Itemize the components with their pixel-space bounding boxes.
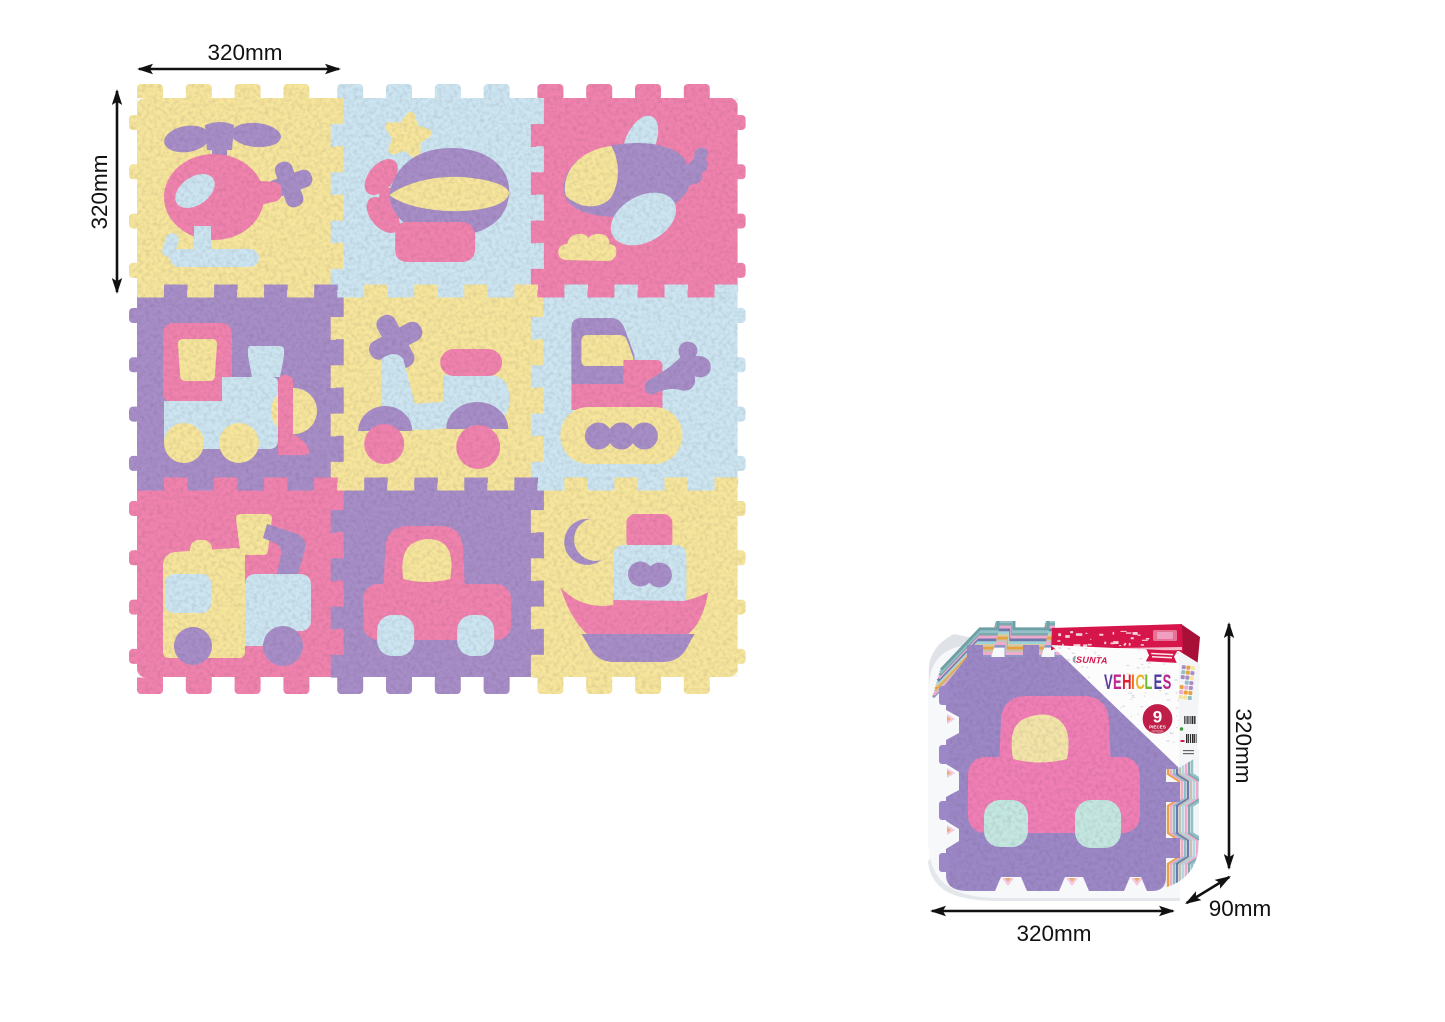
svg-text:E: E (1154, 670, 1163, 694)
svg-text:320mm: 320mm (1016, 921, 1091, 946)
svg-text:320mm: 320mm (1231, 708, 1256, 783)
svg-text:32x32CM: 32x32CM (1151, 732, 1164, 736)
svg-text:E: E (1113, 670, 1122, 694)
svg-text:V: V (1104, 670, 1113, 694)
svg-text:90mm: 90mm (1209, 896, 1272, 921)
svg-text:I: I (1131, 670, 1135, 694)
svg-text:320mm: 320mm (87, 154, 112, 229)
svg-text:C: C (1135, 670, 1145, 694)
svg-text:L: L (1145, 670, 1153, 694)
svg-text:320mm: 320mm (207, 40, 282, 65)
svg-text:H: H (1122, 670, 1131, 694)
svg-text:S: S (1163, 670, 1172, 694)
svg-text:SUNTA: SUNTA (1076, 655, 1108, 666)
svg-text:PIECES: PIECES (1149, 725, 1166, 730)
